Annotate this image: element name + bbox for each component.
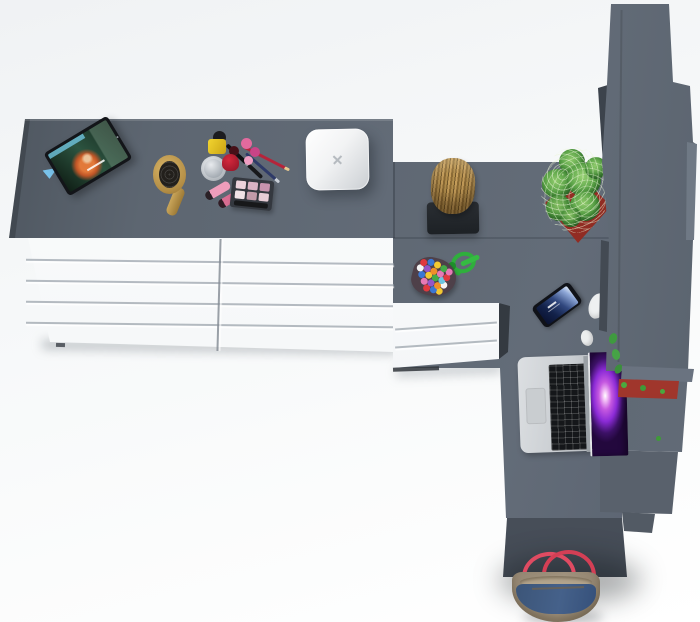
pink-mini-bottle-3 <box>244 156 253 165</box>
log-stool <box>430 157 476 215</box>
palette-pan-4 <box>234 190 245 199</box>
planter-sprig-3 <box>660 389 665 394</box>
red-polish-bottle <box>222 154 239 171</box>
eyeshadow-palette <box>230 177 275 211</box>
planter-sprig-1 <box>621 382 627 388</box>
hairbrush-bristles <box>159 161 180 188</box>
scene-room-topview <box>0 0 700 622</box>
palette-pan-6 <box>258 193 269 202</box>
palette-pan-1 <box>236 180 247 189</box>
dresser-foot <box>56 343 65 347</box>
cosmetics-group <box>196 126 306 221</box>
laptop-trackpad <box>525 388 546 425</box>
tablet-camera-dot <box>116 136 119 139</box>
desk-seam-vertical <box>393 162 395 238</box>
yellow-polish-bottle <box>208 139 226 154</box>
hairbrush <box>150 153 195 215</box>
palette-brush-slot <box>234 200 268 209</box>
planter-sprig-2 <box>640 385 646 391</box>
pink-mini-bottle-2 <box>250 147 260 157</box>
palette-pan-3 <box>259 183 270 192</box>
pink-mini-bottle-1 <box>241 138 252 149</box>
cactus-spine-specks <box>541 147 609 233</box>
tablet-subtitle-text <box>87 159 105 171</box>
planter-sprig-4 <box>656 436 661 441</box>
desk-seam-horizontal <box>393 237 621 239</box>
palette-pan-2 <box>247 182 258 191</box>
white-box <box>305 128 369 190</box>
candy-beads <box>419 258 427 266</box>
dresser-top-back-highlight <box>25 119 393 121</box>
cactus-foliage <box>541 147 609 233</box>
palette-pan-5 <box>246 191 257 200</box>
